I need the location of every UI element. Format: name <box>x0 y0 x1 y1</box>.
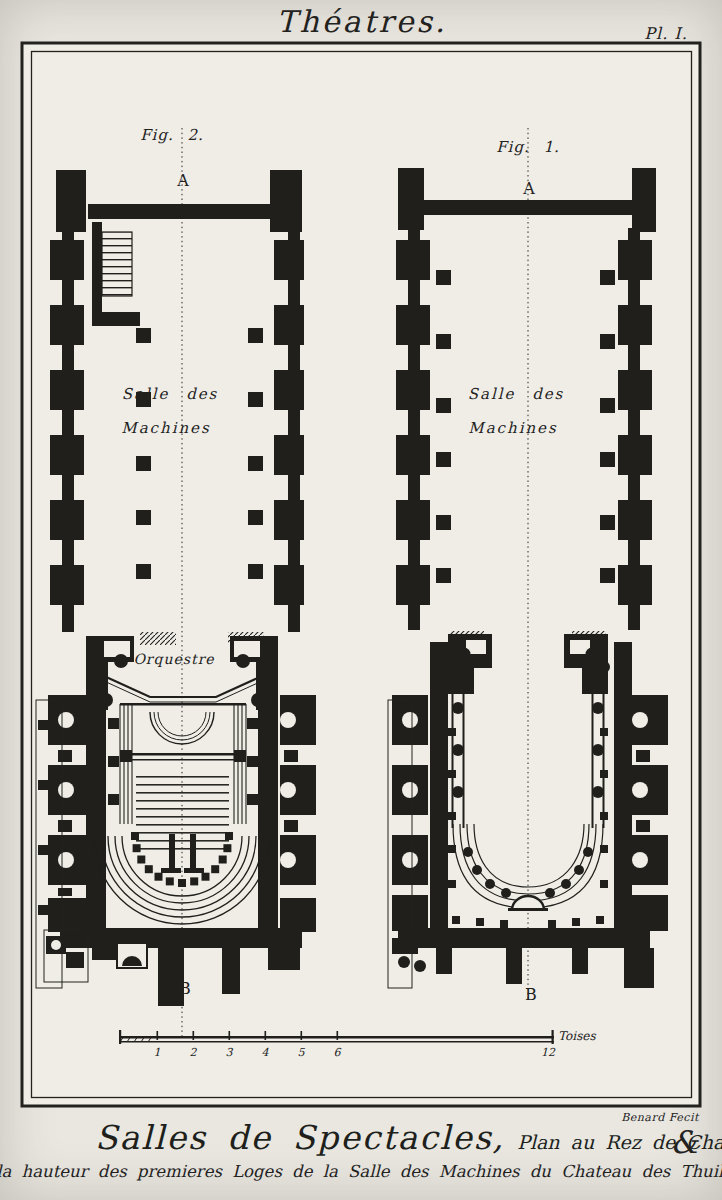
fig2-room-label-line2: Machines <box>121 419 210 437</box>
scale-tick-12: 12 <box>541 1046 555 1059</box>
scale-tick-1: 1 <box>154 1046 161 1059</box>
fig1-room-label-line2: Machines <box>468 419 557 437</box>
scale-tick-2: 2 <box>190 1046 197 1059</box>
fig2-section-marker-b: B <box>179 979 191 998</box>
fig1-room-label-line1: Salle des <box>468 385 565 403</box>
fig1-label: Fig. 1. <box>496 138 560 156</box>
plate-title: Théatres. <box>276 4 447 39</box>
scale-unit-label: Toises <box>558 1029 596 1043</box>
fig2-label: Fig. 2. <box>140 126 204 144</box>
fig1-section-marker-a: A <box>523 179 535 198</box>
plate-caption-line2: Plan a la hauteur des premieres Loges de… <box>0 1162 722 1181</box>
scale-tick-6: 6 <box>334 1046 341 1059</box>
fig1-section-marker-b: B <box>525 985 537 1004</box>
fig2-room-label-line1: Salle des <box>122 385 219 403</box>
scale-tick-4: 4 <box>262 1046 269 1059</box>
plate-engraving <box>0 0 722 1200</box>
engraved-plate-page: Théatres. Pl. I. Fig. 2. Fig. 1. A B A B… <box>0 0 722 1200</box>
caption-ampersand: & <box>670 1124 698 1160</box>
scale-tick-3: 3 <box>226 1046 233 1059</box>
fig2-section-marker-a: A <box>177 171 189 190</box>
plate-caption-line1: Salles de Spectacles, Plan au Rez de Cha… <box>95 1118 722 1157</box>
scale-tick-5: 5 <box>298 1046 305 1059</box>
fig2-orchestra-label: Orquestre <box>133 651 214 667</box>
plate-number: Pl. I. <box>644 24 687 43</box>
caption-main-title: Salles de Spectacles, <box>95 1118 505 1157</box>
